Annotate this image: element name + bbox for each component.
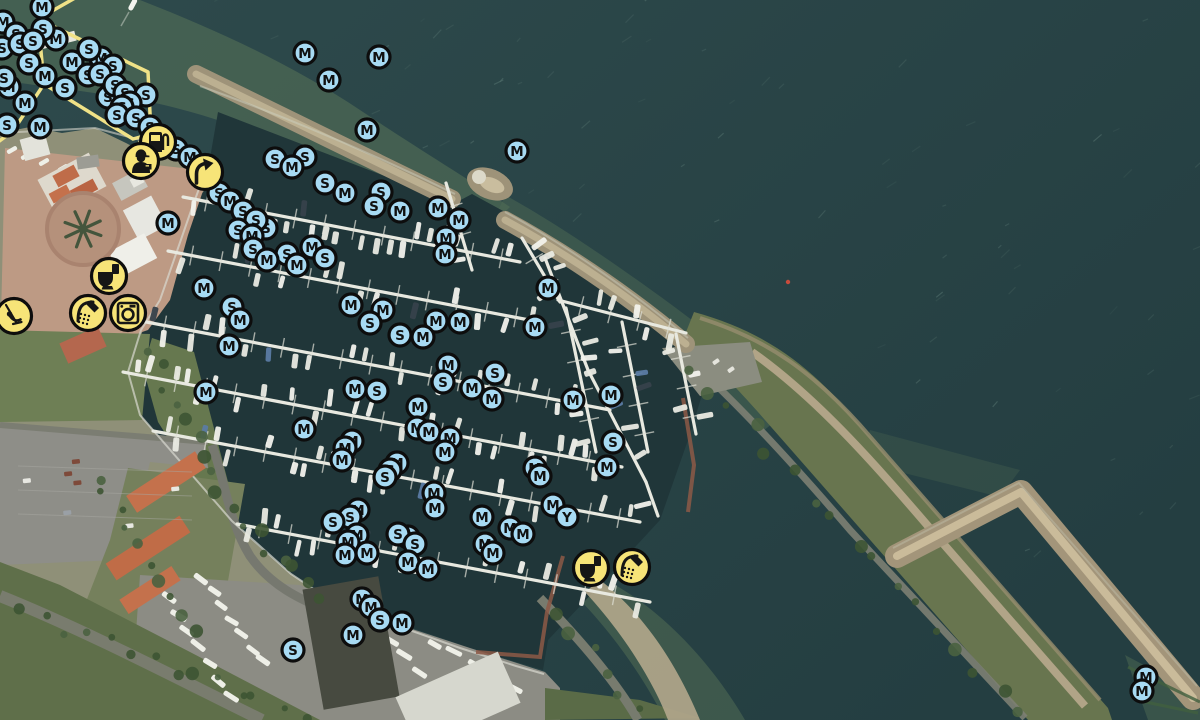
berth-marker-S[interactable]: S [0,114,18,136]
berth-marker-S[interactable]: S [602,431,624,453]
playground-marker[interactable] [0,299,32,334]
map-viewport[interactable]: MSSMMSSSMSSSMMSMSMMSSSSSSSSSSSSSMSSMSSSS… [0,0,1200,720]
berth-marker-M[interactable]: M [157,212,179,234]
berth-marker-M[interactable]: M [334,182,356,204]
svg-text:M: M [33,120,46,136]
berth-marker-S[interactable]: S [369,609,391,631]
svg-text:M: M [528,320,541,336]
berth-marker-M[interactable]: M [29,116,51,138]
svg-text:M: M [453,315,466,331]
svg-text:M: M [360,546,373,562]
berth-marker-M[interactable]: M [512,523,534,545]
berth-marker-S[interactable]: S [314,247,336,269]
berth-marker-M[interactable]: M [424,497,446,519]
berth-marker-M[interactable]: M [368,46,390,68]
svg-text:M: M [421,562,434,578]
svg-text:M: M [485,392,498,408]
berth-marker-M[interactable]: M [344,378,366,400]
berth-marker-M[interactable]: M [334,544,356,566]
svg-text:M: M [199,385,212,401]
svg-text:M: M [338,186,351,202]
svg-text:S: S [608,435,618,451]
svg-text:S: S [112,108,122,124]
svg-text:M: M [260,253,273,269]
shower-marker[interactable] [71,296,106,331]
berth-marker-M[interactable]: M [434,243,456,265]
berth-marker-M[interactable]: M [449,311,471,333]
berth-marker-M[interactable]: M [412,326,434,348]
svg-text:S: S [380,470,390,486]
svg-text:S: S [0,41,7,57]
berth-marker-M[interactable]: M [318,69,340,91]
svg-text:M: M [431,201,444,217]
berth-marker-M[interactable]: M [391,612,413,634]
svg-text:M: M [222,339,235,355]
svg-text:M: M [290,258,303,274]
berth-marker-S[interactable]: S [359,312,381,334]
svg-text:M: M [233,313,246,329]
berth-marker-M[interactable]: M [193,277,215,299]
berth-marker-S[interactable]: S [54,77,76,99]
berth-marker-M[interactable]: M [1131,680,1153,702]
berth-marker-S[interactable]: S [389,324,411,346]
berth-marker-Y[interactable]: Y [556,506,578,528]
svg-text:M: M [422,425,435,441]
svg-text:M: M [18,96,31,112]
svg-text:M: M [516,527,529,543]
svg-text:M: M [428,501,441,517]
svg-text:M: M [344,298,357,314]
berth-marker-M[interactable]: M [600,384,622,406]
svg-text:M: M [411,400,424,416]
svg-text:S: S [393,527,403,543]
berth-marker-M[interactable]: M [461,377,483,399]
svg-text:M: M [297,422,310,438]
svg-text:M: M [335,453,348,469]
svg-text:M: M [438,247,451,263]
svg-text:M: M [35,0,48,16]
svg-text:M: M [604,388,617,404]
svg-text:S: S [320,251,330,267]
berth-marker-M[interactable]: M [34,65,56,87]
berth-marker-M[interactable]: M [524,316,546,338]
berth-marker-M[interactable]: M [281,156,303,178]
berth-marker-M[interactable]: M [229,309,251,331]
berth-marker-M[interactable]: M [218,335,240,357]
berth-marker-M[interactable]: M [417,558,439,580]
berth-marker-M[interactable]: M [482,542,504,564]
svg-text:M: M [298,46,311,62]
svg-text:S: S [320,176,330,192]
svg-text:S: S [24,56,34,72]
toilet-marker[interactable] [92,259,127,294]
svg-text:M: M [372,50,385,66]
berth-marker-S[interactable]: S [363,195,385,217]
berth-marker-M[interactable]: M [342,624,364,646]
svg-text:M: M [465,381,478,397]
svg-text:Y: Y [561,510,572,526]
svg-text:S: S [28,34,38,50]
svg-text:M: M [510,144,523,160]
svg-text:S: S [328,515,338,531]
svg-text:S: S [375,613,385,629]
berth-marker-M[interactable]: M [418,421,440,443]
berth-marker-S[interactable]: S [366,380,388,402]
berth-marker-M[interactable]: M [256,249,278,271]
berth-marker-M[interactable]: M [389,200,411,222]
svg-text:S: S [0,71,9,87]
berth-marker-M[interactable]: M [481,388,503,410]
harbormaster-marker[interactable] [124,144,159,179]
svg-text:S: S [60,81,70,97]
svg-text:S: S [438,375,448,391]
svg-text:M: M [452,213,465,229]
berth-marker-M[interactable]: M [529,465,551,487]
berth-marker-M[interactable]: M [427,197,449,219]
berth-marker-M[interactable]: M [195,381,217,403]
svg-text:M: M [38,69,51,85]
svg-text:M: M [533,469,546,485]
berth-marker-S[interactable]: S [484,362,506,384]
laundry-marker[interactable] [111,296,146,331]
svg-text:M: M [600,460,613,476]
svg-text:S: S [141,88,151,104]
slipway-marker[interactable] [188,155,223,190]
berth-marker-M[interactable]: M [596,456,618,478]
svg-text:M: M [338,548,351,564]
berth-marker-M[interactable]: M [356,542,378,564]
svg-text:M: M [1135,684,1148,700]
berth-marker-M[interactable]: M [537,277,559,299]
svg-text:S: S [490,366,500,382]
berth-marker-S[interactable]: S [282,639,304,661]
svg-text:M: M [161,216,174,232]
berth-marker-S[interactable]: S [322,511,344,533]
berth-marker-S[interactable]: S [0,67,15,89]
svg-text:M: M [401,555,414,571]
svg-text:M: M [322,73,335,89]
svg-text:M: M [486,546,499,562]
svg-text:S: S [2,118,12,134]
berth-marker-M[interactable]: M [294,42,316,64]
berth-marker-M[interactable]: M [31,0,53,18]
berth-marker-M[interactable]: M [434,441,456,463]
berth-marker-S[interactable]: S [78,38,100,60]
svg-text:M: M [429,314,442,330]
svg-text:M: M [348,382,361,398]
berth-marker-M[interactable]: M [506,140,528,162]
berth-marker-M[interactable]: M [14,92,36,114]
shower-marker[interactable] [615,550,650,585]
svg-text:S: S [288,643,298,659]
svg-text:M: M [285,160,298,176]
svg-text:M: M [346,628,359,644]
svg-text:M: M [475,510,488,526]
marina-satellite-map[interactable]: MSSMMSSSMSSSMMSMSMMSSSSSSSSSSSSSMSSMSSSS… [0,0,1200,720]
svg-text:S: S [372,384,382,400]
berth-marker-M[interactable]: M [471,506,493,528]
svg-text:M: M [197,281,210,297]
berth-marker-M[interactable]: M [286,254,308,276]
svg-text:M: M [566,393,579,409]
berth-marker-M[interactable]: M [331,449,353,471]
svg-text:M: M [416,330,429,346]
svg-text:M: M [438,445,451,461]
berth-marker-M[interactable]: M [407,396,429,418]
berth-marker-M[interactable]: M [293,418,315,440]
svg-text:M: M [65,55,78,71]
berth-marker-M[interactable]: M [562,389,584,411]
berth-marker-S[interactable]: S [432,371,454,393]
svg-text:S: S [369,199,379,215]
svg-text:M: M [395,616,408,632]
svg-text:S: S [395,328,405,344]
toilet-marker[interactable] [574,551,609,586]
svg-text:M: M [360,123,373,139]
svg-text:S: S [365,316,375,332]
svg-text:M: M [541,281,554,297]
svg-text:S: S [84,42,94,58]
berth-marker-M[interactable]: M [340,294,362,316]
svg-text:S: S [270,152,280,168]
berth-marker-S[interactable]: S [374,466,396,488]
berth-marker-M[interactable]: M [356,119,378,141]
svg-text:M: M [393,204,406,220]
berth-marker-S[interactable]: S [22,30,44,52]
